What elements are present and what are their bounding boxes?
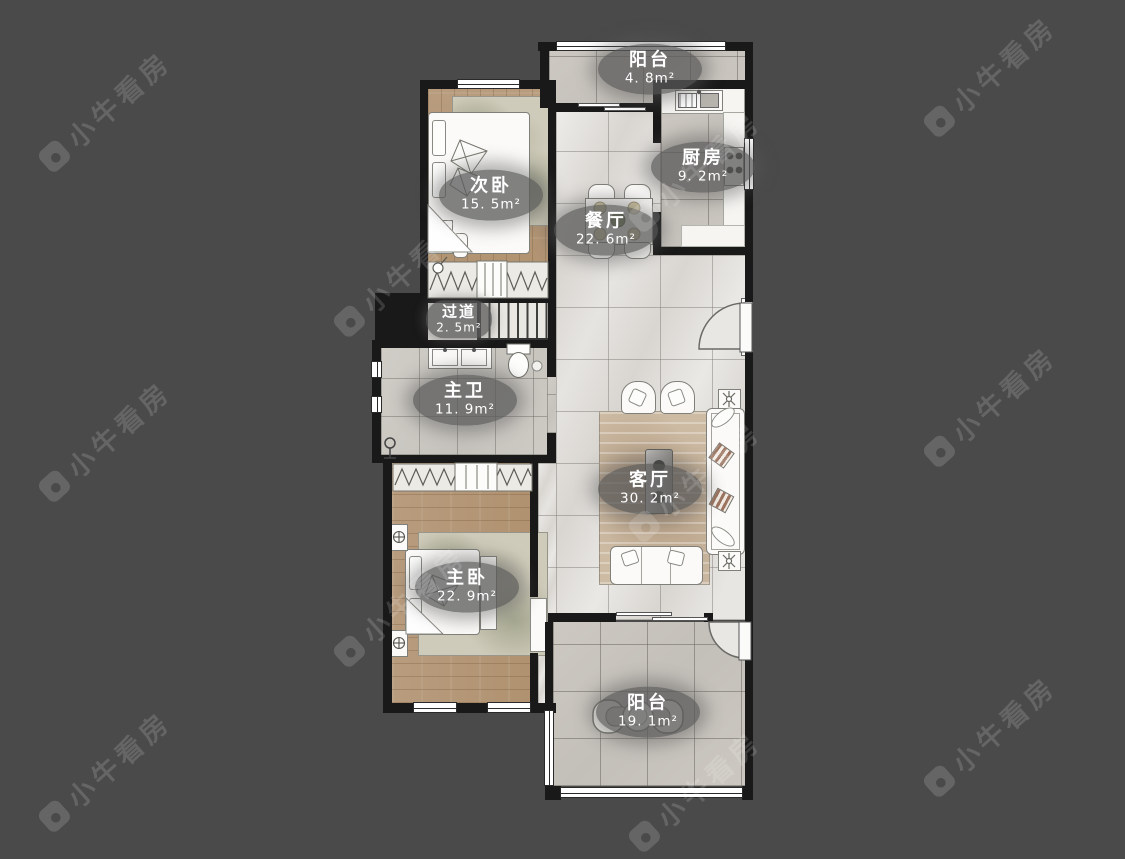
wall [530,455,538,597]
window [371,361,382,378]
watermark-text: 小牛看房 [942,666,1063,781]
watermark-logo-icon [626,817,663,854]
wall [653,247,753,255]
watermark: 小牛看房 [31,701,178,839]
watermark: 小牛看房 [916,336,1063,474]
side-table [718,551,741,571]
room-name: 过道 [442,303,476,320]
kitchen-counter-bottom [681,225,745,247]
room-name: 厨房 [682,149,724,169]
watermark-logo-icon [331,632,368,669]
room-area: 9. 2m² [678,168,728,185]
wall [372,455,556,463]
nightstand [390,524,408,551]
room-name: 餐厅 [585,212,627,232]
floor-bath-doorway [547,377,556,433]
room-area: 19. 1m² [618,713,678,730]
vanity-sink [461,349,487,366]
watermark-logo-icon [921,102,958,139]
watermark: 小牛看房 [31,41,178,179]
window [413,702,457,713]
window [371,396,382,413]
watermark-logo-icon [36,137,73,174]
room-area: 11. 9m² [435,401,495,418]
room-name: 主卧 [446,569,488,589]
sliding-door [616,612,672,616]
room-label-kitchen: 厨房 9. 2m² [651,142,755,193]
wall [383,455,392,713]
room-name: 客厅 [629,471,671,491]
room-label-hallway: 过道 2. 5m² [426,300,492,338]
wall [653,88,661,143]
room-label-bathroom-master: 主卫 11. 9m² [413,375,517,426]
wall [548,613,616,622]
room-area: 2. 5m² [436,320,481,335]
side-table [718,389,741,409]
pillow [432,120,446,156]
watermark-logo-icon [921,762,958,799]
room-area: 30. 2m² [620,490,680,507]
room-name: 主卫 [444,382,486,402]
watermark: 小牛看房 [31,371,178,509]
window [544,710,554,786]
wall [545,786,561,800]
floor-plan: 阳台 4. 8m² 厨房 9. 2m² 次卧 15. 5m² 餐厅 22. 6m… [0,0,1125,844]
watermark-logo-icon [36,797,73,834]
desk-chair [453,233,468,258]
watermark-logo-icon [331,302,368,339]
room-area: 22. 6m² [576,231,636,248]
sliding-door [604,107,646,111]
sink-basin [700,93,719,108]
wall [742,786,753,800]
room-name: 阳台 [629,51,671,71]
room-area: 22. 9m² [437,588,497,605]
vanity-sink [432,349,458,366]
room-label-balcony-bottom: 阳台 19. 1m² [596,687,700,738]
watermark: 小牛看房 [916,6,1063,144]
room-label-bedroom-second: 次卧 15. 5m² [439,170,543,221]
pillow [409,598,422,632]
room-name: 次卧 [470,177,512,197]
nightstand [390,630,408,657]
wall [420,80,428,304]
room-area: 15. 5m² [461,196,521,213]
window [560,787,743,798]
wall [547,340,556,377]
wall [545,622,553,712]
room-name: 阳台 [627,694,669,714]
watermark-text: 小牛看房 [942,336,1063,451]
watermark-text: 小牛看房 [57,371,178,486]
watermark-text: 小牛看房 [57,701,178,816]
room-label-living: 客厅 30. 2m² [598,464,702,515]
wall-right-lower [745,352,753,800]
watermark-logo-icon [921,432,958,469]
watermark-text: 小牛看房 [57,41,178,156]
sink-drainer [678,93,697,108]
room-label-balcony-top: 阳台 4. 8m² [598,44,702,95]
room-area: 4. 8m² [625,70,675,87]
window [487,702,531,713]
window [457,79,520,89]
watermark-logo-icon [36,467,73,504]
wall [372,340,556,348]
sliding-door [652,617,708,621]
watermark-text: 小牛看房 [942,6,1063,121]
room-label-bedroom-master: 主卧 22. 9m² [415,562,519,613]
watermark: 小牛看房 [916,666,1063,804]
wall [548,88,556,348]
tv-screen [432,226,448,239]
room-label-dining: 餐厅 22. 6m² [554,205,658,256]
